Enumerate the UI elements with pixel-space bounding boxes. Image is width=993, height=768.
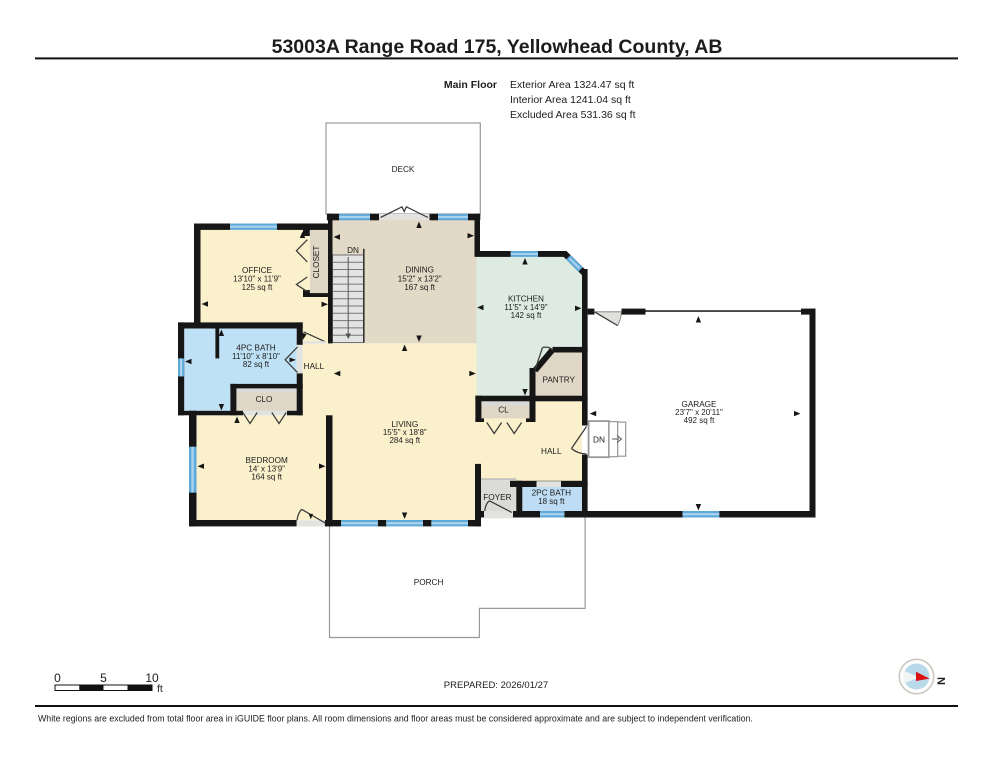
svg-text:DECK: DECK — [392, 165, 415, 174]
svg-text:Main Floor: Main Floor — [444, 79, 497, 91]
svg-text:HALL: HALL — [541, 447, 562, 456]
svg-text:167 sq ft: 167 sq ft — [404, 283, 435, 292]
svg-text:Exterior Area 1324.47 sq ft: Exterior Area 1324.47 sq ft — [510, 79, 634, 91]
svg-text:PREPARED: 2026/01/27: PREPARED: 2026/01/27 — [444, 680, 548, 691]
svg-text:PORCH: PORCH — [414, 578, 444, 587]
svg-text:142 sq ft: 142 sq ft — [511, 311, 542, 320]
svg-text:284 sq ft: 284 sq ft — [389, 436, 420, 445]
svg-text:82 sq ft: 82 sq ft — [243, 360, 270, 369]
svg-text:492 sq ft: 492 sq ft — [684, 416, 715, 425]
svg-text:Excluded Area 531.36 sq ft: Excluded Area 531.36 sq ft — [510, 109, 636, 121]
svg-text:White regions are excluded fro: White regions are excluded from total fl… — [38, 714, 753, 724]
svg-text:CLOSET: CLOSET — [312, 246, 321, 279]
svg-text:DN: DN — [347, 246, 359, 255]
svg-text:CLO: CLO — [256, 395, 273, 404]
svg-text:Interior Area 1241.04 sq ft: Interior Area 1241.04 sq ft — [510, 94, 631, 106]
svg-text:PANTRY: PANTRY — [542, 376, 575, 385]
svg-text:FOYER: FOYER — [483, 493, 511, 502]
svg-text:CL: CL — [498, 406, 509, 415]
svg-text:0: 0 — [54, 671, 61, 685]
svg-text:125 sq ft: 125 sq ft — [242, 283, 273, 292]
svg-text:ft: ft — [157, 683, 163, 695]
svg-text:5: 5 — [100, 671, 107, 685]
svg-text:DN: DN — [593, 434, 605, 444]
svg-text:DINING: DINING — [405, 266, 434, 275]
svg-text:53003A Range Road 175, Yellowh: 53003A Range Road 175, Yellowhead County… — [272, 36, 723, 58]
svg-text:HALL: HALL — [304, 362, 325, 371]
svg-text:18 sq ft: 18 sq ft — [538, 497, 565, 506]
svg-text:164 sq ft: 164 sq ft — [251, 473, 282, 482]
svg-text:N: N — [935, 677, 947, 685]
